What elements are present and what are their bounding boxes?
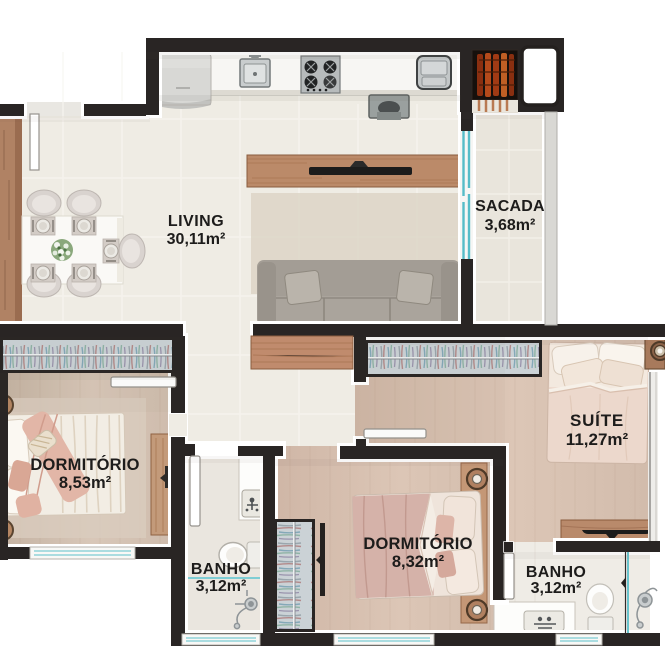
svg-text:BANHO: BANHO [191,561,251,578]
svg-text:11,27m²: 11,27m² [566,430,629,449]
svg-text:SUÍTE: SUÍTE [570,411,624,430]
svg-text:DORMITÓRIO: DORMITÓRIO [363,534,472,553]
svg-text:BANHO: BANHO [526,564,586,581]
svg-text:3,12m²: 3,12m² [531,580,582,597]
svg-text:3,12m²: 3,12m² [196,578,247,595]
svg-text:LIVING: LIVING [168,213,224,230]
svg-text:30,11m²: 30,11m² [167,231,226,248]
svg-text:SACADA: SACADA [475,198,545,215]
svg-text:8,32m²: 8,32m² [392,553,445,571]
svg-text:DORMITÓRIO: DORMITÓRIO [30,455,139,474]
svg-text:3,68m²: 3,68m² [485,217,536,234]
svg-text:8,53m²: 8,53m² [59,474,112,492]
